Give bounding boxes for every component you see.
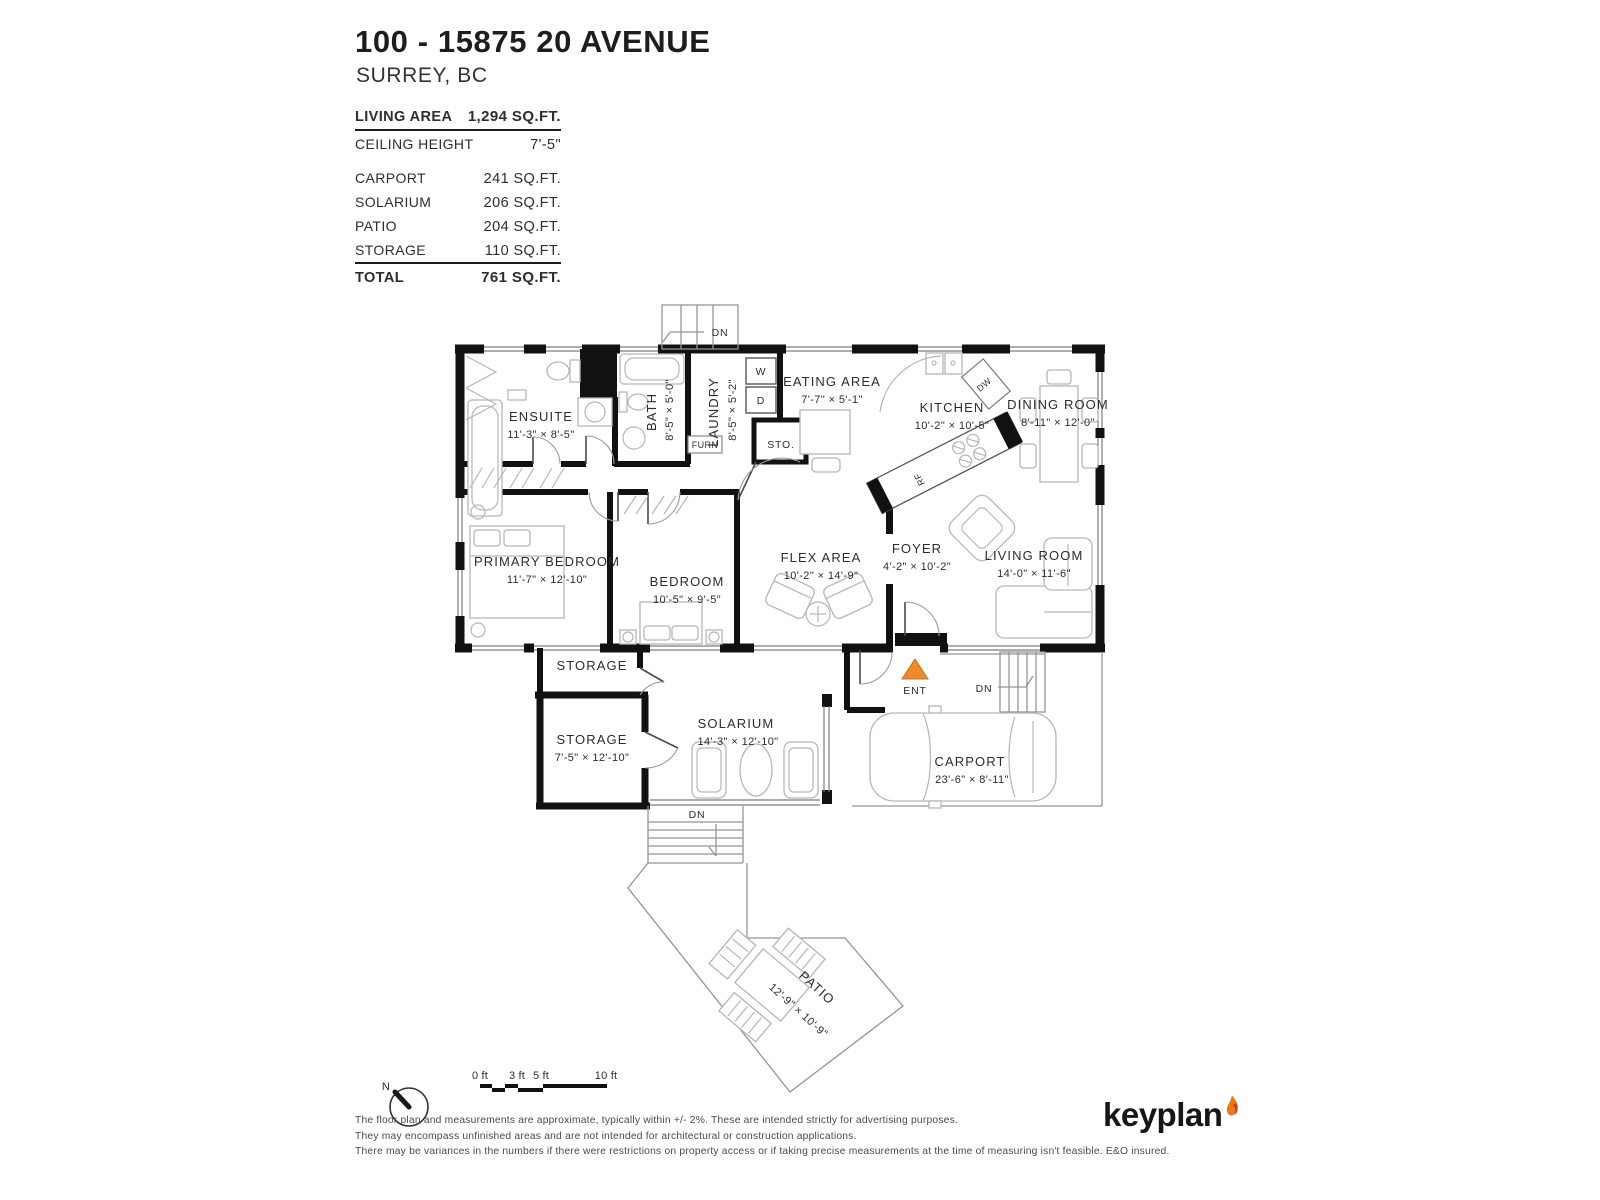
room-label-storage-lower: STORAGE bbox=[556, 732, 627, 747]
room-dims-flex-area: 10'-2" × 14'-9" bbox=[784, 570, 859, 582]
furn-label: FURN bbox=[692, 440, 719, 450]
solarium-furniture bbox=[692, 742, 818, 798]
room-dims-living-room: 14'-0" × 11'-6" bbox=[997, 568, 1071, 580]
dn-top-label: DN bbox=[712, 327, 729, 339]
room-dims-foyer: 4'-2" × 10'-2" bbox=[883, 561, 951, 573]
room-dims-kitchen: 10'-2" × 10'-5" bbox=[915, 420, 990, 432]
scale-segment bbox=[480, 1084, 492, 1088]
room-dims-eating-area: 7'-7" × 5'-1" bbox=[801, 394, 863, 406]
living-furniture bbox=[945, 491, 1092, 638]
room-label-foyer: FOYER bbox=[892, 541, 942, 556]
scale-tick-0: 0 ft bbox=[472, 1070, 488, 1082]
room-label-solarium: SOLARIUM bbox=[698, 716, 775, 731]
room-dims-storage-lower: 7'-5" × 12'-10" bbox=[555, 752, 630, 764]
scale-segment bbox=[505, 1084, 518, 1088]
scale-bar: 0 ft 3 ft 5 ft 10 ft bbox=[472, 1070, 617, 1092]
dn-entry-label: DN bbox=[976, 683, 993, 695]
dn-patio-label: DN bbox=[689, 809, 706, 821]
flame-icon bbox=[1223, 1095, 1241, 1117]
scale-segment bbox=[492, 1088, 505, 1092]
disclaimer: The floor plan and measurements are appr… bbox=[355, 1113, 1545, 1160]
dryer-label: D bbox=[757, 395, 765, 407]
room-dims-ensuite: 11'-3" × 8'-5" bbox=[507, 429, 574, 441]
scale-tick-5: 5 ft bbox=[533, 1070, 549, 1082]
washer-label: W bbox=[756, 366, 767, 378]
sto-label: STO. bbox=[767, 439, 795, 451]
kitchen-fixtures bbox=[867, 353, 1023, 514]
scale-tick-3: 3 ft bbox=[509, 1070, 525, 1082]
room-dims-bath: 8'-5" × 5'-0" bbox=[664, 379, 676, 441]
room-label-kitchen: KITCHEN bbox=[920, 400, 985, 415]
scale-segment bbox=[518, 1088, 543, 1092]
room-label-bath: BATH bbox=[644, 393, 659, 431]
room-dims-solarium: 14'-3" × 12'-10" bbox=[697, 736, 778, 748]
room-dims-primary-bedroom: 11'-7" × 12'-10" bbox=[507, 574, 587, 586]
furniture bbox=[466, 353, 1098, 1046]
room-dims-laundry: 8'-5" × 5'-2" bbox=[727, 379, 739, 441]
room-label-ensuite: ENSUITE bbox=[509, 409, 573, 424]
compass-north-label: N bbox=[382, 1081, 390, 1093]
entry-marker bbox=[902, 659, 928, 679]
room-dims-dining-room: 8'-11" × 12'-0" bbox=[1021, 417, 1095, 429]
room-label-eating-area: EATING AREA bbox=[783, 374, 881, 389]
floor-plan-drawing: ENSUITE 11'-3" × 8'-5" BATH 8'-5" × 5'-0… bbox=[0, 0, 1600, 1200]
room-label-dining-room: DINING ROOM bbox=[1007, 397, 1109, 412]
room-label-flex-area: FLEX AREA bbox=[781, 550, 862, 565]
disclaimer-line-1: The floor plan and measurements are appr… bbox=[355, 1113, 1545, 1129]
primary-bed bbox=[470, 505, 564, 637]
room-label-laundry: LAUNDRY bbox=[706, 377, 721, 447]
disclaimer-line-3: There may be variances in the numbers if… bbox=[355, 1144, 1545, 1160]
compass-needle-icon bbox=[395, 1092, 409, 1107]
room-label-living-room: LIVING ROOM bbox=[985, 548, 1084, 563]
floor-plan-page: 100 - 15875 20 AVENUE SURREY, BC LIVING … bbox=[0, 0, 1600, 1200]
scale-segment bbox=[543, 1084, 607, 1088]
room-label-carport: CARPORT bbox=[934, 754, 1005, 769]
room-label-bedroom: BEDROOM bbox=[650, 574, 725, 589]
room-label-storage-upper: STORAGE bbox=[556, 658, 627, 673]
keyplan-logo-text: keyplan bbox=[1103, 1097, 1222, 1133]
room-dims-carport: 23'-6" × 8'-11" bbox=[935, 774, 1009, 786]
bedroom-bed bbox=[620, 602, 722, 644]
disclaimer-line-2: They may encompass unfinished areas and … bbox=[355, 1129, 1545, 1145]
keyplan-logo: keyplan bbox=[1103, 1097, 1241, 1133]
entry-triangle-icon bbox=[902, 659, 928, 679]
room-dims-bedroom: 10'-5" × 9'-5" bbox=[653, 594, 721, 606]
scale-tick-10: 10 ft bbox=[595, 1070, 617, 1082]
stairs-entry bbox=[940, 652, 1045, 712]
ent-label: ENT bbox=[903, 685, 926, 697]
room-label-primary-bedroom: PRIMARY BEDROOM bbox=[474, 554, 620, 569]
